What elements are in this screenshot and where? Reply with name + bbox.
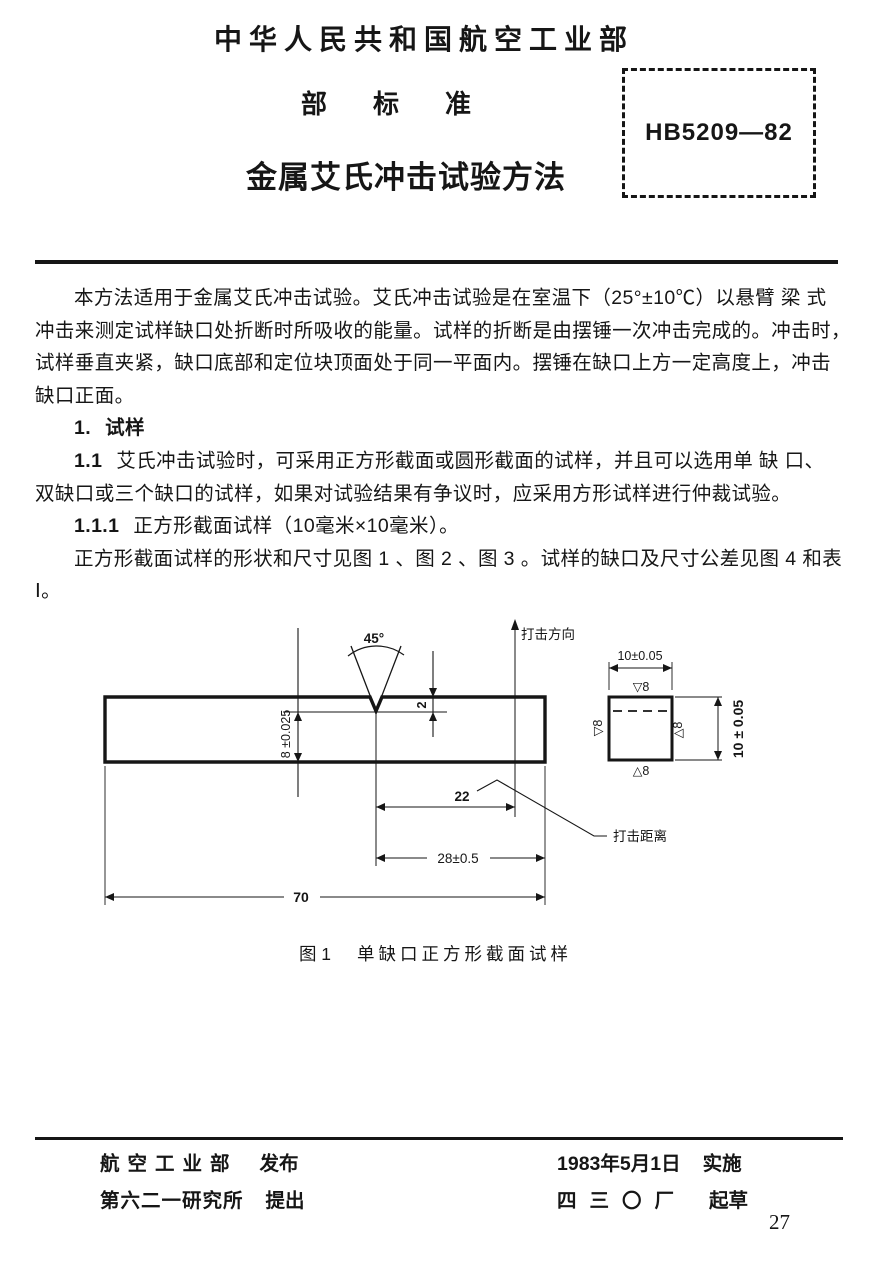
section-title: 试样 <box>105 417 145 439</box>
standard-number: HB5209—82 <box>645 119 793 147</box>
footer-drafted: 四三〇厂起草 <box>557 1184 748 1213</box>
clause-line: 1.1艾氏冲击试验时，可采用正方形截面或圆形截面的试样，并且可以选用单 缺 口、 <box>35 445 836 478</box>
roughness-left: ▽8 <box>591 720 605 737</box>
section-number: 1. <box>74 417 91 439</box>
section-height-dimension: 10 ± 0.05 <box>730 700 746 758</box>
standard-number-box: HB5209—82 <box>622 68 816 198</box>
header-divider <box>35 260 838 264</box>
issued-action: 发布 <box>260 1147 299 1176</box>
footer-issued: 航空工业部发布 <box>100 1147 299 1176</box>
ligament-dimension-text: 8 ±0.025 <box>279 710 293 759</box>
impact-distance-label: 打击距离 <box>613 828 667 844</box>
clause-line: 双缺口或三个缺口的试样，如果对试验结果有争议时，应采用方形试样进行仲裁试验。 <box>35 478 836 511</box>
roughness-right: △8 <box>671 722 685 739</box>
total-length-dimension: 70 <box>105 766 545 905</box>
cross-section: 10±0.05 ▽8 ▽8 △8 △8 10 ± 0.05 <box>591 649 746 778</box>
issuing-org: 航空工业部 <box>100 1147 238 1176</box>
angle-dimension: 45° <box>364 631 384 646</box>
impact-direction-label: 打击方向 <box>521 626 575 642</box>
drafted-action: 起草 <box>709 1184 748 1213</box>
roughness-top: ▽8 <box>633 680 650 694</box>
document-page: 中华人民共和国航空工业部 部标准 金属艾氏冲击试验方法 HB5209—82 本方… <box>0 0 871 1277</box>
page-number: 27 <box>769 1210 790 1235</box>
clause-number: 1.1 <box>74 450 102 472</box>
proposing-org: 第六二一研究所 <box>100 1184 244 1213</box>
paragraph-line: 正方形截面试样的形状和尺寸见图 1 、图 2 、图 3 。试样的缺口及尺寸公差见… <box>35 543 836 576</box>
clause-text: 艾氏冲击试验时，可采用正方形截面或圆形截面的试样，并且可以选用单 缺 口、 <box>116 450 824 472</box>
drafting-org: 四三〇厂 <box>557 1184 687 1213</box>
implementation-action: 实施 <box>703 1147 742 1176</box>
standard-type: 部标准 <box>301 84 517 121</box>
clause-number: 1.1.1 <box>74 515 119 537</box>
figure-caption-label: 图 1 <box>299 941 331 966</box>
figure-caption-text: 单缺口正方形截面试样 <box>357 941 572 966</box>
notch-depth-text: 2 <box>415 701 429 708</box>
paragraph-line: 本方法适用于金属艾氏冲击试验。艾氏冲击试验是在室温下（25°±10℃）以悬臂 梁… <box>35 282 836 315</box>
clause-text: 正方形截面试样（10毫米×10毫米）。 <box>133 515 459 537</box>
impact-distance-leader: 打击距离 <box>477 780 667 844</box>
clause-line: 1.1.1正方形截面试样（10毫米×10毫米）。 <box>35 510 836 543</box>
section-width-dimension: 10±0.05 <box>617 649 662 663</box>
total-length-text: 70 <box>293 889 309 905</box>
figure-1-drawing: 45° 8 ±0.025 2 打击方向 <box>0 600 871 945</box>
paragraph-line: 冲击来测定试样缺口处折断时所吸收的能量。试样的折断是由摆锤一次冲击完成的。冲击时… <box>35 315 836 348</box>
proposed-action: 提出 <box>266 1184 305 1213</box>
paragraph-line: 试样垂直夹紧，缺口底部和定位块顶面处于同一平面内。摆锤在缺口上方一定高度上，冲击 <box>35 347 836 380</box>
implementation-date: 1983年5月1日 <box>557 1147 681 1176</box>
roughness-bottom: △8 <box>633 764 650 778</box>
figure-caption: 图 1 单缺口正方形截面试样 <box>0 941 871 966</box>
impact-distance-value: 22 <box>454 789 469 804</box>
section-heading: 1.试样 <box>35 412 836 445</box>
specimen-bar <box>105 697 545 762</box>
angle-arc <box>348 646 404 656</box>
notch-to-end-dimension: 28±0.5 <box>376 851 545 866</box>
paragraph-line: 缺口正面。 <box>35 380 836 413</box>
page-title: 金属艾氏冲击试验方法 <box>246 152 566 197</box>
impact-distance-dimension: 22 <box>376 789 515 811</box>
footer-divider <box>35 1137 843 1140</box>
notch-to-end-text: 28±0.5 <box>437 851 478 866</box>
ministry-name: 中华人民共和国航空工业部 <box>214 18 634 58</box>
body-text: 本方法适用于金属艾氏冲击试验。艾氏冲击试验是在室温下（25°±10℃）以悬臂 梁… <box>35 282 836 608</box>
footer-proposed: 第六二一研究所提出 <box>100 1184 305 1213</box>
footer-implementation: 1983年5月1日实施 <box>557 1147 742 1176</box>
